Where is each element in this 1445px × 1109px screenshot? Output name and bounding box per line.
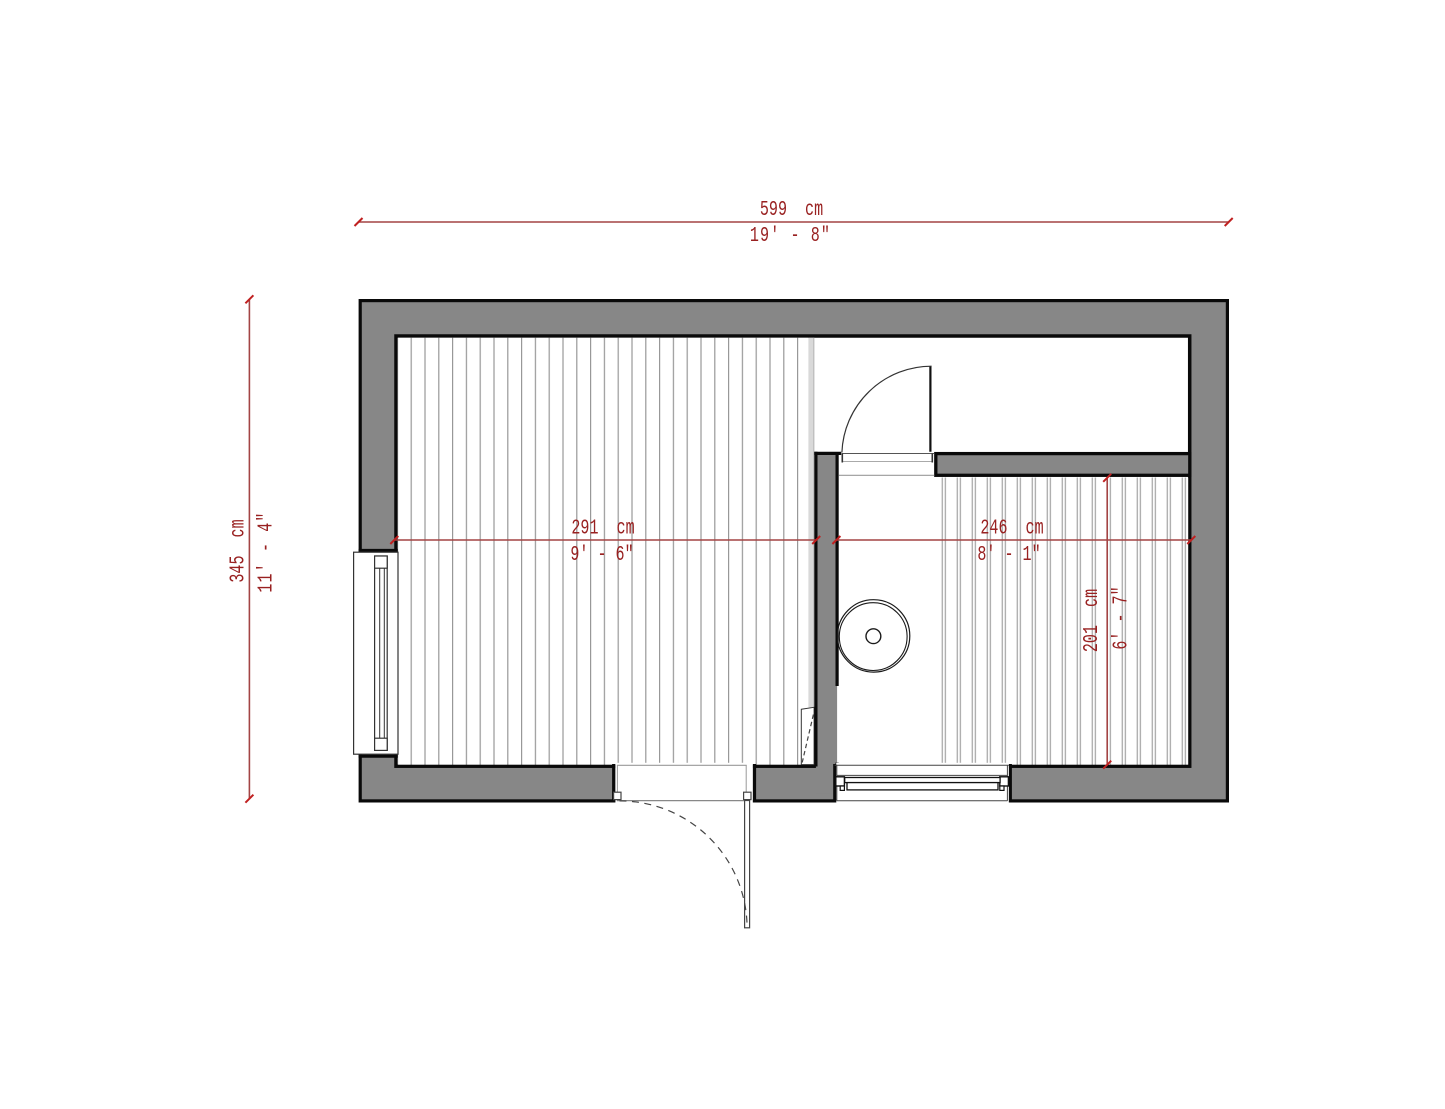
- svg-text:291 cm: 291 cm: [571, 516, 634, 540]
- svg-text:599 cm: 599 cm: [760, 197, 823, 221]
- svg-text:246 cm: 246 cm: [980, 516, 1043, 540]
- svg-text:11' - 4": 11' - 4": [254, 511, 278, 592]
- svg-text:9' - 6": 9' - 6": [570, 543, 633, 567]
- svg-text:19' - 8": 19' - 8": [750, 224, 831, 248]
- svg-text:6' - 7": 6' - 7": [1109, 586, 1133, 649]
- svg-text:201 cm: 201 cm: [1080, 589, 1104, 652]
- svg-text:8' - 1": 8' - 1": [977, 543, 1040, 567]
- svg-text:345 cm: 345 cm: [226, 519, 250, 582]
